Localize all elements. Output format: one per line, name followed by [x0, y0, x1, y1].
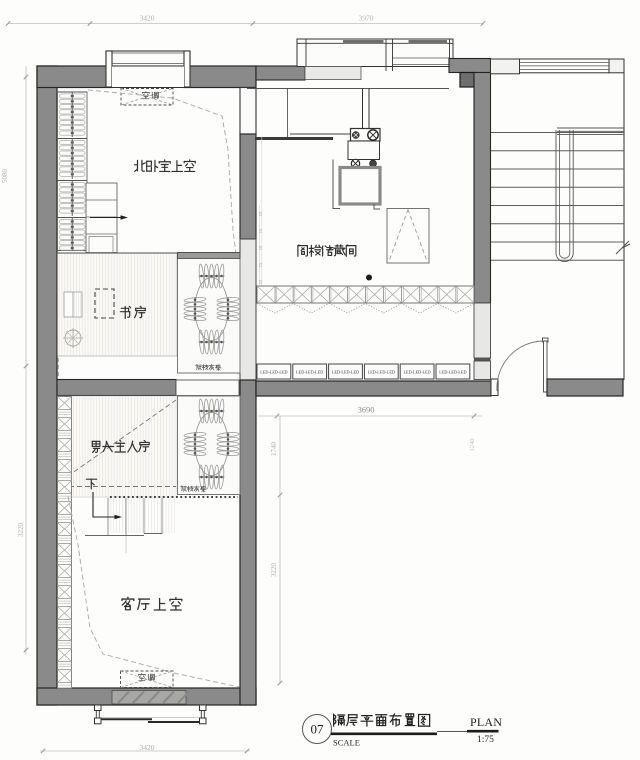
svg-text:3220: 3220 — [17, 523, 25, 538]
svg-text:15: 15 — [258, 245, 263, 250]
svg-text:3420: 3420 — [140, 14, 155, 23]
svg-text:1:75: 1:75 — [477, 735, 494, 745]
svg-text:LED-LED-LED: LED-LED-LED — [296, 370, 323, 375]
svg-text:PLAN: PLAN — [470, 715, 502, 729]
svg-text:1740: 1740 — [270, 442, 278, 457]
svg-text:3220: 3220 — [270, 563, 278, 578]
svg-text:LED-LED-LED: LED-LED-LED — [439, 370, 466, 375]
svg-text:1240: 1240 — [469, 439, 476, 452]
svg-text:SCALE: SCALE — [333, 738, 360, 748]
svg-text:15: 15 — [258, 228, 263, 233]
svg-text:LED-LED-LED: LED-LED-LED — [332, 370, 359, 375]
svg-text:LED-LED-LED: LED-LED-LED — [368, 370, 395, 375]
svg-text:5080: 5080 — [1, 169, 9, 184]
svg-text:07: 07 — [311, 722, 325, 737]
svg-text:LED-LED-LED: LED-LED-LED — [403, 370, 430, 375]
svg-text:LED-LED-LED: LED-LED-LED — [260, 370, 287, 375]
svg-text:3690: 3690 — [358, 405, 375, 415]
svg-text:15: 15 — [258, 279, 263, 284]
svg-text:15: 15 — [258, 211, 263, 216]
svg-text:3970: 3970 — [359, 14, 374, 23]
svg-text:15: 15 — [258, 262, 263, 267]
svg-text:3420: 3420 — [140, 743, 155, 752]
